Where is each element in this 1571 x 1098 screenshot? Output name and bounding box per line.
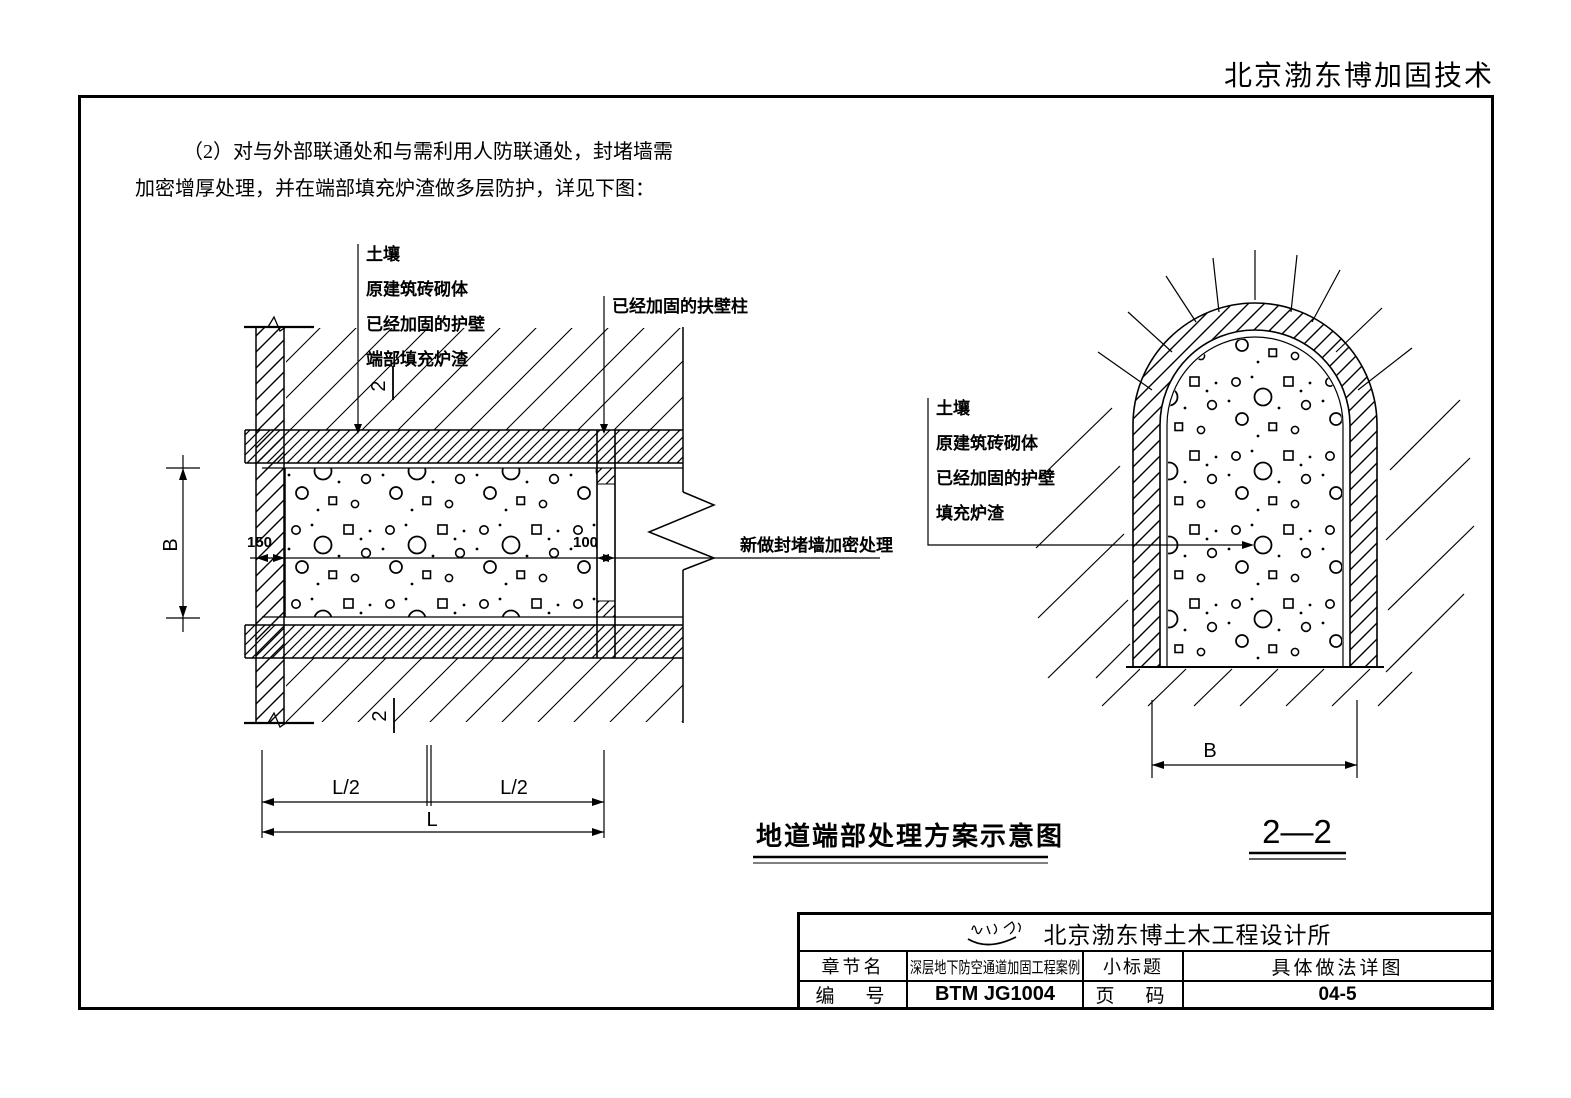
label-lining: 已经加固的护壁 <box>366 314 485 334</box>
label-fill-right: 填充炉渣 <box>936 503 1005 523</box>
dim-l2a-label: L/2 <box>332 777 360 799</box>
dim-l-label: L <box>426 809 437 831</box>
soil-hatch-top <box>286 328 683 430</box>
left-drawing: 2 2 B L/2 L/2 <box>160 244 893 838</box>
dim-b-left-label: B <box>160 538 182 551</box>
number-label-cell: 编 号 <box>800 980 906 1007</box>
drawing-title: 地道端部处理方案示意图 <box>756 821 1064 851</box>
page-value-cell: 04-5 <box>1182 980 1491 1007</box>
slag-fill <box>285 468 597 617</box>
captions: 地道端部处理方案示意图 2—2 <box>753 813 1346 863</box>
section-title: 2—2 <box>1262 813 1332 850</box>
dim-l2b-label: L/2 <box>500 777 528 799</box>
dim-150-label: 150 <box>247 534 272 551</box>
section-mark-top-label: 2 <box>368 380 390 391</box>
label-soil: 土壤 <box>366 244 401 264</box>
page-label-cell: 页 码 <box>1082 980 1182 1007</box>
dim-b-left: B <box>160 455 200 632</box>
company-logo-icon <box>960 918 1034 948</box>
chapter-value-text: 深层地下防空通道加固工程案例 <box>910 954 1080 978</box>
label-buttress: 已经加固的扶壁柱 <box>612 296 748 316</box>
soil-hatch-bottom <box>286 658 683 722</box>
right-drawing: 土壤 原建筑砖砌体 已经加固的护壁 填充炉渣 B <box>928 250 1474 778</box>
sealing-wall <box>597 430 615 658</box>
label-soil-right: 土壤 <box>936 398 971 418</box>
label-end-fill: 端部填充炉渣 <box>366 349 469 369</box>
dim-b-right: B <box>1152 700 1357 778</box>
dim-100-label: 100 <box>573 534 598 551</box>
subtitle-label-cell: 小标题 <box>1082 950 1182 980</box>
masonry-band-bottom <box>245 617 683 658</box>
chapter-value-cell: 深层地下防空通道加固工程案例 <box>906 950 1082 980</box>
document-page: 北京渤东博加固技术 （2）对与外部联通处和与需利用人防联通处，封堵墙需 加密增厚… <box>0 0 1571 1098</box>
arch-slag-fill <box>1168 338 1342 666</box>
subtitle-value-cell: 具体做法详图 <box>1182 950 1491 980</box>
label-seal-note: 新做封堵墙加密处理 <box>740 535 893 555</box>
number-value-cell: BTM JG1004 <box>906 980 1082 1007</box>
section-mark-bottom-label: 2 <box>369 710 391 721</box>
title-block-company-row: 北京渤东博土木工程设计所 <box>800 915 1491 950</box>
dim-b-right-label: B <box>1203 740 1216 762</box>
title-block-company: 北京渤东博土木工程设计所 <box>1044 916 1332 950</box>
title-block: 北京渤东博土木工程设计所 章节名 深层地下防空通道加固工程案例 小标题 具体做法… <box>797 912 1494 1010</box>
label-lining-right: 已经加固的护壁 <box>936 468 1055 488</box>
dim-bottom: L/2 L/2 L <box>262 745 604 838</box>
label-masonry: 原建筑砖砌体 <box>366 279 469 299</box>
chapter-label-cell: 章节名 <box>800 950 906 980</box>
masonry-band-top <box>245 430 683 468</box>
label-masonry-right: 原建筑砖砌体 <box>936 433 1039 453</box>
